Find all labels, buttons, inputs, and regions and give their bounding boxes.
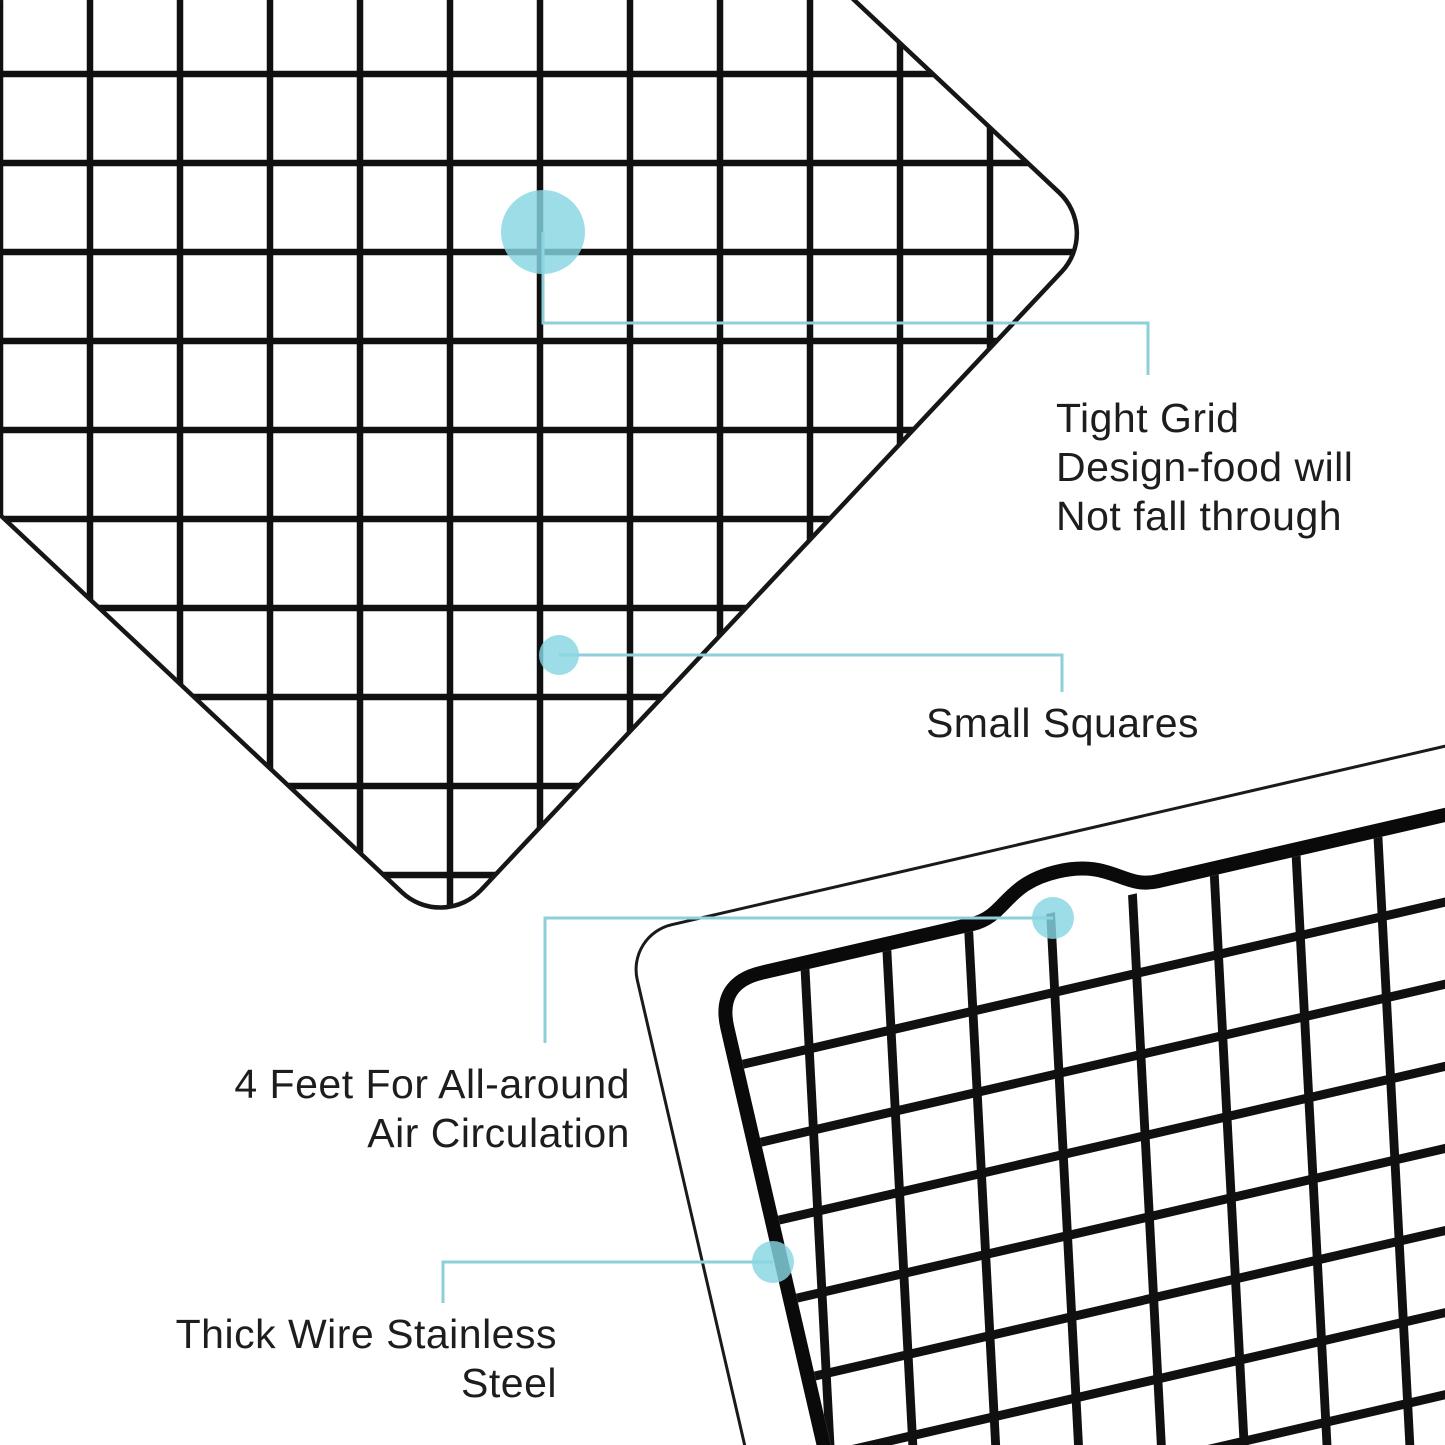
- callout-label-thick-wire: Thick Wire Stainless Steel: [145, 1310, 557, 1408]
- callout-dot-thick-wire: [752, 1241, 794, 1283]
- callout-text-line: Not fall through: [1056, 492, 1353, 541]
- callout-dot-small-squares: [539, 635, 579, 675]
- callout-text-line: Design-food will: [1056, 443, 1353, 492]
- callout-text-line: Tight Grid: [1056, 394, 1353, 443]
- callout-text-line: 4 Feet For All-around: [150, 1060, 630, 1109]
- callout-label-small-squares: Small Squares: [895, 699, 1230, 748]
- callout-line-small-squares: [559, 655, 1062, 692]
- callout-text-line: Thick Wire Stainless: [145, 1310, 557, 1359]
- product-annotation-image: Tight Grid Design-food will Not fall thr…: [0, 0, 1445, 1445]
- callout-dot-tight-grid: [501, 190, 585, 274]
- mesh-vertical-wires-top: [0, 0, 1080, 945]
- callout-label-tight-grid: Tight Grid Design-food will Not fall thr…: [1056, 394, 1353, 541]
- mesh-wires-top: [0, 0, 1115, 945]
- callout-dot-four-feet: [1032, 897, 1074, 939]
- callout-text-line: Small Squares: [895, 699, 1230, 748]
- cooling-rack-top: [0, 0, 1115, 945]
- callout-text-line: Air Circulation: [150, 1109, 630, 1158]
- callout-label-four-feet: 4 Feet For All-around Air Circulation: [150, 1060, 630, 1158]
- rack-frame-top: [0, 0, 1100, 931]
- callout-text-line: Steel: [145, 1359, 557, 1408]
